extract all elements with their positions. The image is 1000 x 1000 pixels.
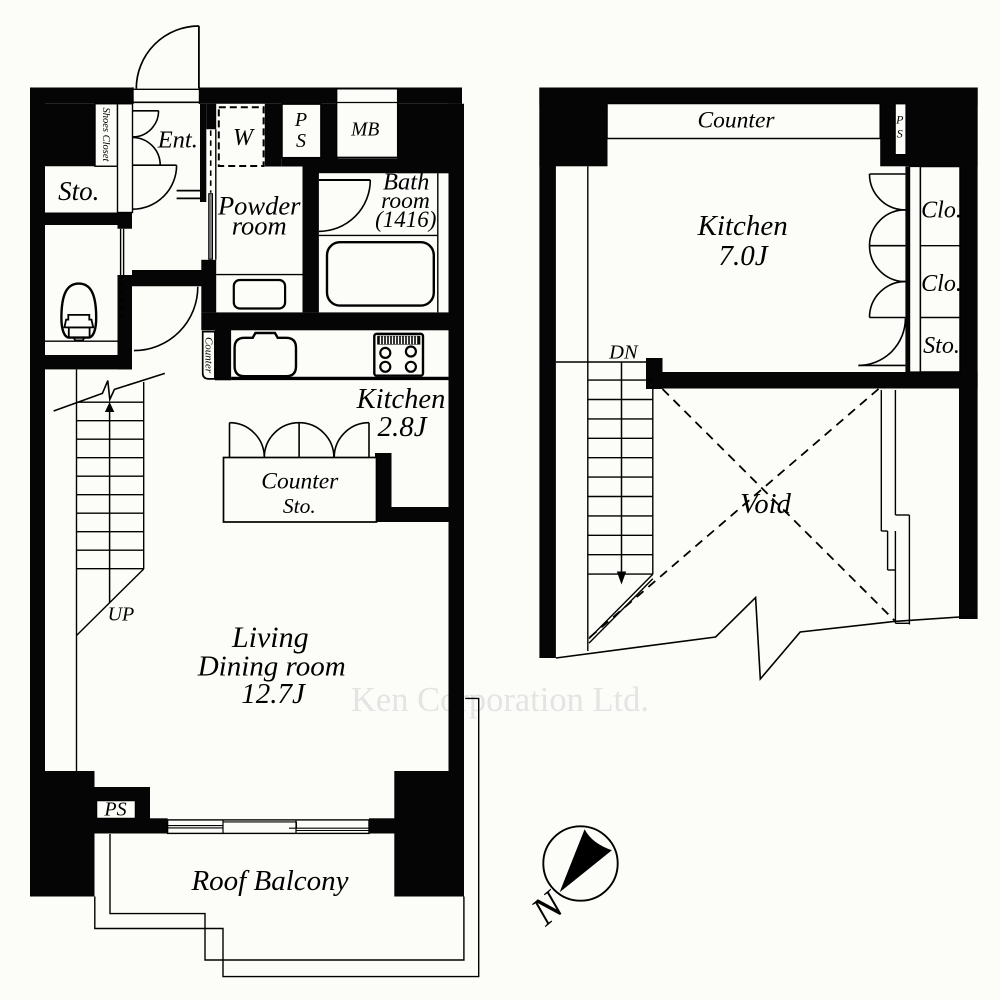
svg-text:Clo.: Clo. <box>921 271 962 297</box>
svg-text:P: P <box>895 113 904 127</box>
svg-text:Kitchen: Kitchen <box>697 210 788 242</box>
svg-text:UP: UP <box>108 604 135 626</box>
svg-text:(1416): (1416) <box>375 207 436 232</box>
svg-text:2.8J: 2.8J <box>377 411 427 443</box>
svg-text:Counter: Counter <box>261 469 339 495</box>
svg-text:room: room <box>232 210 287 240</box>
svg-text:MB: MB <box>350 119 379 140</box>
svg-text:Sto.: Sto. <box>923 333 960 359</box>
svg-text:S: S <box>897 127 903 141</box>
svg-text:Sto.: Sto. <box>58 176 99 206</box>
svg-text:Ent.: Ent. <box>157 127 198 154</box>
svg-text:Ken Corporation Ltd.: Ken Corporation Ltd. <box>351 681 649 719</box>
svg-text:Void: Void <box>740 489 791 520</box>
svg-text:DN: DN <box>608 342 639 364</box>
svg-text:S: S <box>296 130 306 152</box>
svg-text:Roof Balcony: Roof Balcony <box>190 865 348 897</box>
svg-text:Counter: Counter <box>203 337 215 374</box>
svg-text:7.0J: 7.0J <box>718 240 768 272</box>
svg-text:Shoes Closet: Shoes Closet <box>100 108 111 163</box>
svg-text:Sto.: Sto. <box>283 494 316 518</box>
svg-text:12.7J: 12.7J <box>241 678 306 710</box>
svg-text:Clo.: Clo. <box>921 197 962 223</box>
svg-text:Counter: Counter <box>697 108 775 134</box>
svg-text:Living: Living <box>231 621 309 654</box>
svg-text:PS: PS <box>103 799 126 821</box>
svg-text:W: W <box>233 125 255 151</box>
svg-text:P: P <box>294 109 307 131</box>
